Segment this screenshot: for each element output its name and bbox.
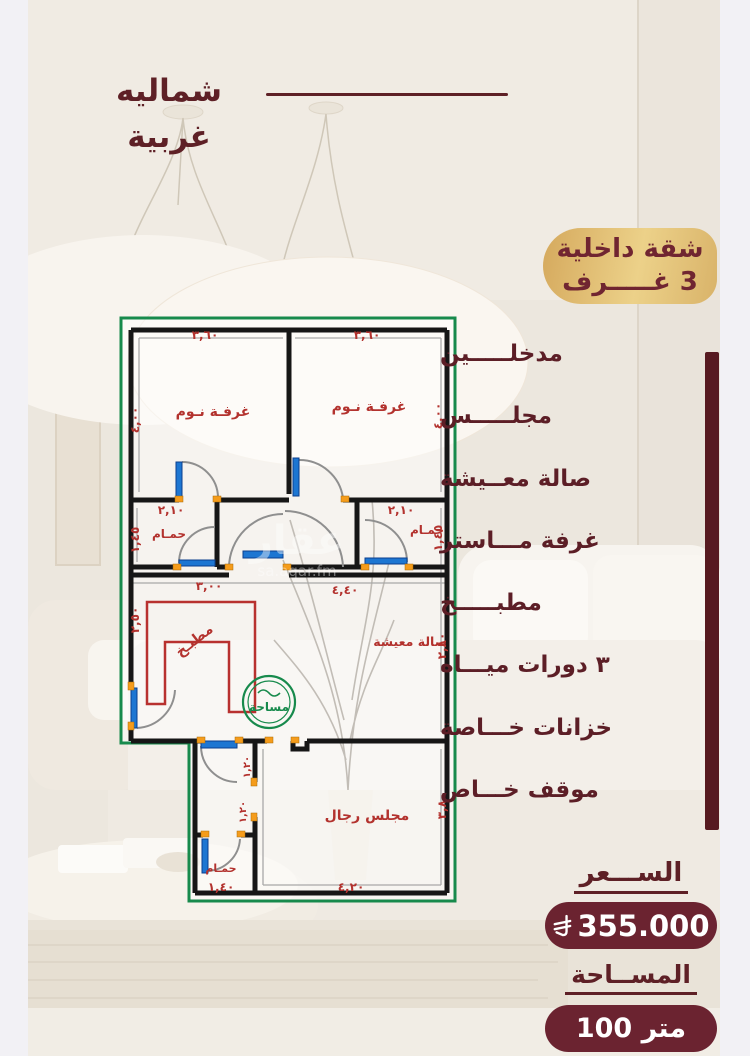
- dim-bed1-top: ٣,٦٠: [192, 328, 219, 342]
- dim-kitchen-top: ٣,٠٠: [196, 579, 223, 593]
- watermark-latin: sa.aqar.fm: [257, 562, 336, 580]
- feature-entrances: مدخلـــــين: [440, 341, 563, 367]
- watermark-arabic: عقار: [248, 518, 344, 564]
- dim-bath1-top: ٢,١٠: [158, 503, 185, 517]
- label-majlis: مجلس رجال: [325, 808, 410, 824]
- dim-majlis-bottom: ٤,٢٠: [338, 880, 365, 894]
- title-divider-line: [266, 93, 508, 96]
- price-label: الســـعر: [545, 858, 717, 894]
- feature-master-room: غرفة مـــاستر: [440, 528, 600, 554]
- area-value: 100 متر: [576, 1013, 686, 1044]
- dim-bed1-side: ٤,٠٠: [128, 407, 142, 434]
- badge-line-1: شقة داخلية: [556, 233, 703, 266]
- price-pill: 355.000: [545, 902, 717, 949]
- feature-accent-bar: [705, 352, 719, 830]
- feature-majlis: مجلـــــس: [440, 403, 552, 429]
- price-label-text: الســـعر: [574, 858, 689, 894]
- dim-bed2-top: ٣,٦٠: [354, 328, 381, 342]
- orientation-title: شماليه غربية: [80, 68, 258, 114]
- dim-small-bath: ١,٤٠: [208, 880, 235, 894]
- feature-kitchen: مطبـــــخ: [440, 590, 542, 616]
- dim-bath1-side: ١,٤٥: [128, 527, 142, 554]
- area-pill: 100 متر: [545, 1005, 717, 1052]
- feature-bathrooms: ٣ دورات ميـــاه: [440, 652, 610, 678]
- riyal-currency-icon: [552, 914, 572, 938]
- feature-tanks: خزانات خـــاصة: [440, 715, 612, 741]
- label-bathroom-1: حمـام: [152, 527, 186, 542]
- dim-kitchen-side: ٢,٥٠: [128, 607, 142, 634]
- feature-living-room: صالة معــيشة: [440, 466, 591, 492]
- flyer-canvas: عقار sa.aqar.fm مساحة غرفـة نـوم غرفـة ن…: [0, 0, 750, 1056]
- price-value: 355.000: [577, 909, 709, 943]
- badge-line-2: 3 غـــــرف: [562, 266, 698, 299]
- label-bedroom-1: غرفـة نـوم: [176, 404, 251, 420]
- dim-living-top: ٤,٤٠: [332, 583, 359, 597]
- stamp-text: مساحة: [249, 700, 289, 714]
- feature-parking: موقف خـــاص: [440, 777, 599, 803]
- area-label: المســاحة: [545, 960, 717, 995]
- floor-plan: عقار sa.aqar.fm مساحة غرفـة نـوم غرفـة ن…: [117, 312, 463, 906]
- label-bedroom-2: غرفـة نـوم: [332, 399, 407, 415]
- watermark: عقار sa.aqar.fm: [248, 518, 344, 580]
- area-label-text: المســاحة: [565, 960, 697, 995]
- apartment-type-badge: شقة داخلية 3 غـــــرف: [543, 228, 717, 304]
- feature-list: مدخلـــــين مجلـــــس صالة معــيشة غرفة …: [440, 341, 698, 803]
- dim-corridor-2: ١,٢٠: [238, 801, 249, 823]
- dim-corridor-1: ١,٢٠: [242, 756, 253, 778]
- dim-bath2-top: ٢,١٠: [388, 503, 415, 517]
- label-bathroom-3: حمـام: [205, 862, 236, 875]
